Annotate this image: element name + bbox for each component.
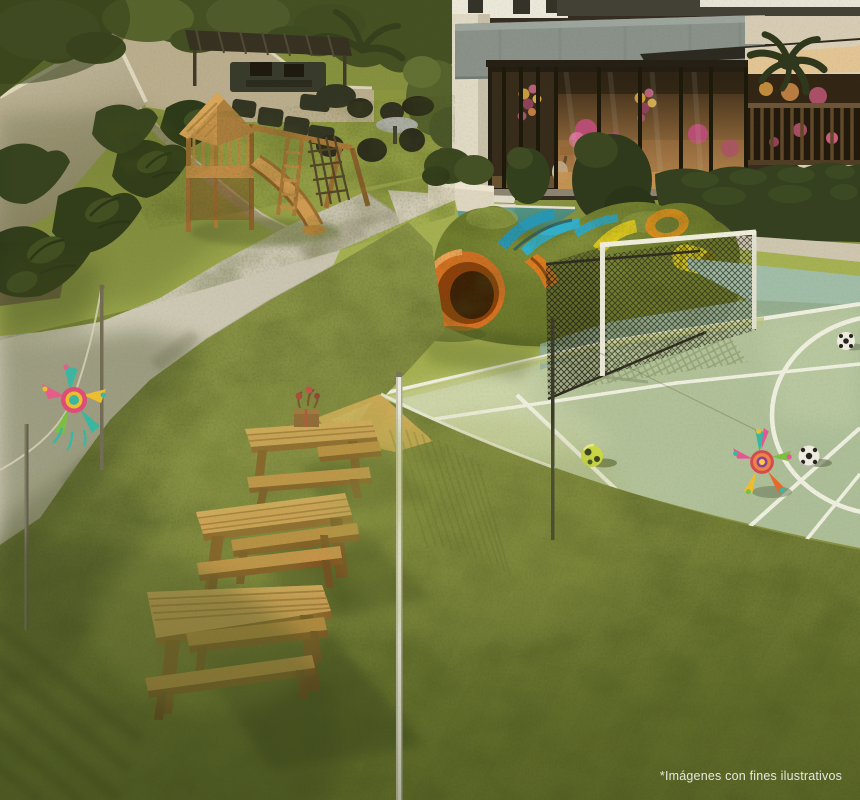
svg-text:*Imágenes con fines ilustrativ: *Imágenes con fines ilustrativos xyxy=(660,769,842,783)
